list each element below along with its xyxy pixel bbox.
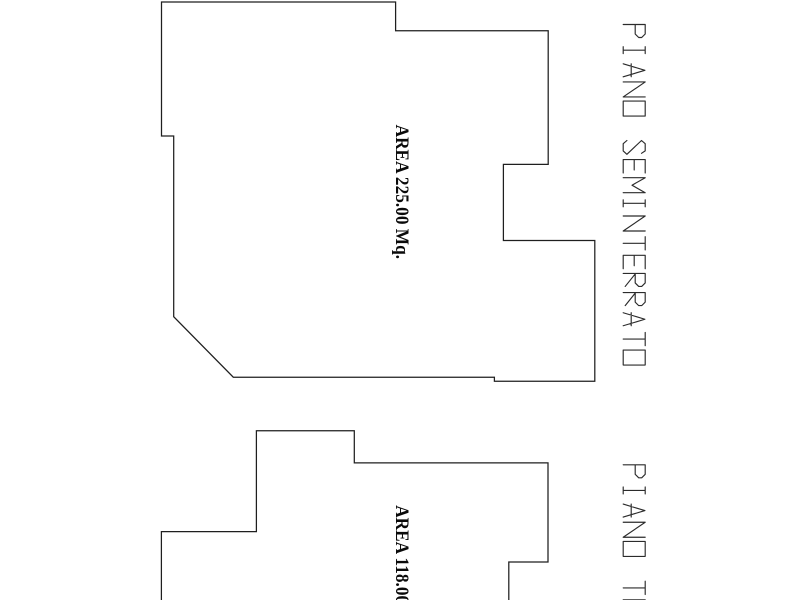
svg-text:AREA 225.00 Mq.: AREA 225.00 Mq. (392, 125, 413, 259)
svg-text:AREA 118.00 Mq.: AREA 118.00 Mq. (392, 505, 413, 600)
